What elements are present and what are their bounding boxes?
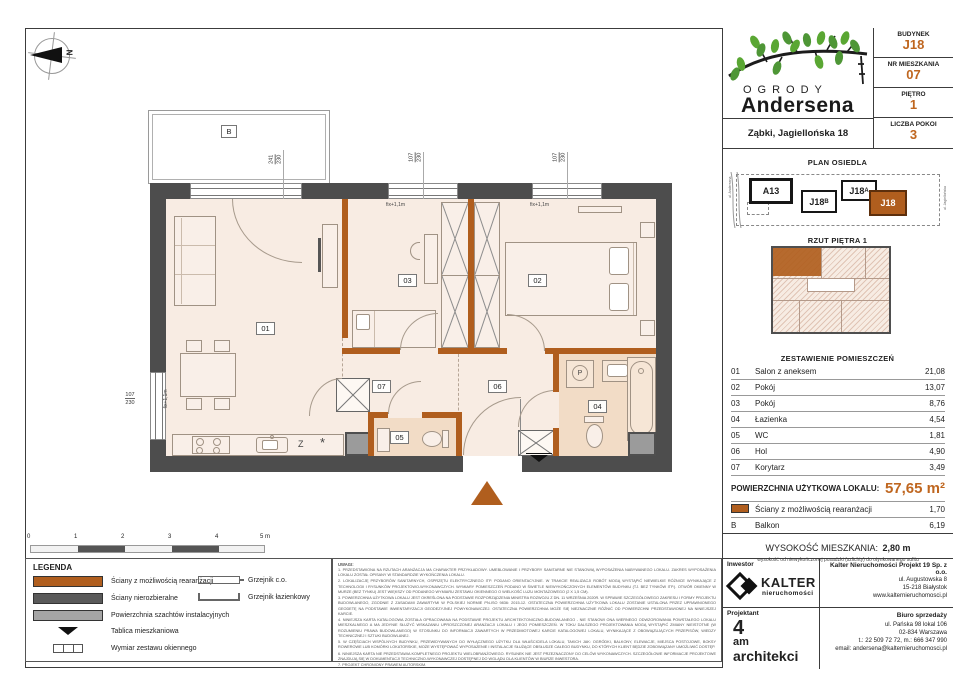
building-label: J18 — [809, 197, 824, 207]
investor-label: Inwestor — [727, 561, 754, 568]
room-area: 4,54 — [929, 415, 945, 424]
info-row: NR MIESZKANIA 07 — [874, 58, 953, 88]
wardrobe — [441, 202, 469, 348]
sales-line: ul. Pańska 98 lokal 106 — [826, 621, 947, 629]
building-a13: A13 — [749, 178, 793, 204]
dining-table — [180, 353, 236, 397]
balcony-area: 6,19 — [929, 521, 945, 530]
washing-machine-symbol: P — [572, 365, 588, 381]
window-dimension: 107 230 — [409, 143, 424, 171]
toilet-bowl — [586, 424, 603, 448]
bed-line — [374, 311, 375, 347]
sofa-line — [175, 274, 215, 275]
sales-line: t.: 22 509 72 72, m.: 666 347 990 — [826, 637, 947, 645]
legend-item: Powierzchnia szachtów instalacyjnych — [33, 610, 229, 621]
sofa-line — [181, 218, 182, 304]
room-label-07: 07 — [372, 380, 391, 393]
room-name: WC — [755, 431, 929, 440]
building-j18-highlight: J18 — [869, 190, 907, 216]
investor-cell: Inwestor KALTER nieruchomości — [723, 559, 819, 607]
table-row: 07 Korytarz 3,49 — [731, 460, 945, 476]
burner — [213, 438, 221, 446]
room-label-04: 04 — [588, 400, 607, 413]
building-label: J18 — [849, 186, 864, 196]
kalter-logo-icon — [729, 573, 759, 601]
fridge-symbol: * — [320, 435, 325, 450]
brand-logo: OGRODY Andersena — [723, 28, 873, 118]
pillow — [609, 283, 629, 311]
room-no: 02 — [731, 383, 755, 392]
x-mark — [475, 203, 499, 275]
scale-tick: 0 — [27, 534, 30, 540]
dim-height: 230 — [415, 153, 423, 162]
scale-bar: 0 1 2 3 4 5 m — [30, 534, 280, 556]
note-item: 5. W CZĘŚCIACH WSPÓLNYCH BUDYNKU, PRZEWI… — [338, 640, 716, 650]
info-value: 07 — [874, 68, 953, 82]
swatch-wrap — [731, 504, 755, 515]
toilet-bowl — [422, 431, 442, 447]
wall — [602, 183, 672, 199]
dishwasher-label: Z — [298, 439, 304, 449]
burner — [213, 447, 220, 454]
fix-height-label: fix+1,1m — [530, 202, 549, 208]
x-mark — [442, 203, 468, 275]
reconfigurable-wall — [368, 418, 374, 456]
dim-height: 230 — [125, 398, 134, 406]
total-label: POWIERZCHNIA UŻYTKOWA LOKALU: — [731, 484, 885, 493]
compass-n-label: N — [64, 50, 73, 56]
balcony-outline — [148, 110, 330, 184]
balcony-label: Balkon — [755, 521, 929, 530]
wall — [302, 183, 388, 199]
room-area: 4,90 — [929, 447, 945, 456]
scale-segment — [172, 546, 219, 552]
highlighted-unit — [773, 248, 821, 276]
note-item: 7. PROJEKT CHRONIONY PRAWEM AUTORSKIM. — [338, 663, 716, 668]
wardrobe-cell — [442, 203, 468, 276]
building-label: J18 — [880, 198, 895, 208]
reconfigurable-wall — [553, 428, 559, 456]
notes-box: UWAGI: 1. PRZEDSTAWIONA NA RZUTACH ARANŻ… — [332, 558, 722, 662]
room-name: Łazienka — [755, 415, 929, 424]
nightstand — [640, 320, 655, 336]
scale-tick: 3 — [168, 534, 171, 540]
unit-info-column: BUDYNEK J18 NR MIESZKANIA 07 PIĘTRO 1 LI… — [873, 28, 953, 148]
info-board-icon — [58, 627, 78, 635]
north-arrow — [30, 47, 62, 63]
info-row: BUDYNEK J18 — [874, 28, 953, 58]
table-row: 06 Hol 4,90 — [731, 444, 945, 460]
company-line: 15-218 Białystok — [826, 584, 947, 592]
investor-name: KALTER — [761, 575, 816, 590]
north-compass-icon: N — [28, 34, 76, 82]
street-label-right: ul. Jagiellońska — [943, 186, 947, 210]
info-board-icon-wrap — [33, 627, 103, 635]
solid-wall-swatch — [33, 593, 103, 604]
thumb-core — [807, 278, 855, 292]
headboard-line — [633, 243, 634, 315]
designer-logo-am: am — [733, 638, 749, 648]
note-item: 4. NINIEJSZA KARTA KATALOGOWA ZOSTAŁA OP… — [338, 618, 716, 639]
reconfigurable-wall — [553, 354, 559, 392]
reconfigurable-wall — [474, 348, 507, 354]
entry-opening — [463, 456, 522, 472]
shelf — [578, 206, 622, 213]
designer-cell: Projektant 4 am architekci — [723, 608, 819, 669]
designer-logo-architekci: architekci — [733, 650, 798, 663]
legend-item: Grzejnik łazienkowy — [198, 593, 310, 601]
company-cell: Kalter Nieruchomości Projekt 19 Sp. z o.… — [820, 559, 953, 607]
room-label-02: 02 — [528, 274, 547, 287]
scale-tick: 1 — [74, 534, 77, 540]
info-row: PIĘTRO 1 — [874, 88, 953, 118]
street-label-left: ul. Andersena — [728, 177, 732, 198]
rooms-table-title: ZESTAWIENIE POMIESZCZEŃ — [723, 354, 952, 363]
chair — [186, 340, 202, 352]
faucet — [270, 435, 274, 439]
room-name: Salon z aneksem — [755, 367, 925, 376]
drain — [638, 368, 644, 374]
designer-logo-4: 4 — [733, 619, 744, 637]
room-no: 05 — [731, 431, 755, 440]
height-label: WYSOKOŚĆ MIESZKANIA: — [765, 543, 878, 553]
room-name: Pokój — [755, 383, 925, 392]
room-area: 13,07 — [925, 383, 945, 392]
room-label-05: 05 — [390, 431, 409, 444]
info-value: 3 — [874, 128, 953, 142]
project-address: Ząbki, Jagiellońska 18 — [723, 118, 873, 148]
wc-sink — [377, 428, 390, 452]
scale-segment — [125, 546, 172, 552]
total-area-row: POWIERZCHNIA UŻYTKOWA LOKALU: 57,65 m² — [731, 476, 945, 502]
shaft-swatch — [33, 610, 103, 621]
tv-cabinet — [322, 224, 338, 288]
legend-label: Grzejnik łazienkowy — [248, 594, 310, 601]
divider — [723, 148, 953, 149]
chair — [214, 398, 230, 410]
scale-tick: 5 m — [260, 534, 270, 540]
room-name: Pokój — [755, 399, 929, 408]
info-row: LICZBA POKOI 3 — [874, 118, 953, 148]
reconfigurable-wall-swatch — [33, 576, 103, 587]
room-area: 8,76 — [929, 399, 945, 408]
company-line: www.kalternieruchomosci.pl — [826, 592, 947, 600]
sales-cell: Biuro sprzedaży ul. Pańska 98 lokal 106 … — [820, 608, 953, 669]
site-plan-map: ul. Andersena ul. Jagiellońska A13 J18B … — [727, 170, 949, 232]
building-j18b: J18B — [801, 190, 837, 213]
walls-label: Ściany z możliwością rearanżacji — [755, 505, 929, 514]
toilet-tank — [442, 430, 449, 448]
reconfigurable-wall — [342, 199, 348, 338]
total-value: 57,65 m² — [885, 480, 945, 497]
dim-height: 230 — [559, 153, 567, 162]
toilet-tank — [584, 416, 604, 423]
chair — [214, 340, 230, 352]
legend-title: LEGENDA — [33, 563, 72, 572]
info-value: 1 — [874, 98, 953, 112]
sales-line: 02-834 Warszawa — [826, 629, 947, 637]
wardrobe-cell — [475, 203, 499, 276]
wardrobe-cell — [442, 276, 468, 348]
table-row: 04 Łazienka 4,54 — [731, 412, 945, 428]
notes-title: UWAGI: — [338, 562, 716, 567]
footer-grid: Inwestor KALTER nieruchomości Kalter Nie… — [723, 558, 953, 668]
note-item: 1. PRZEDSTAWIONA NA RZUTACH ARANŻACJA MA… — [338, 568, 716, 578]
walls-area: 1,70 — [929, 505, 945, 514]
note-item: 2. LOKALIZACJĘ PRZYBORÓW SANITARNYCH, OS… — [338, 579, 716, 595]
legend-label: Powierzchnia szachtów instalacyjnych — [111, 612, 229, 619]
room-name: Hol — [755, 447, 929, 456]
scale-bar-segments — [30, 545, 265, 553]
height-info: WYSOKOŚĆ MIESZKANIA: 2,80 m wysokość od … — [723, 533, 953, 558]
door-leaf — [520, 399, 521, 456]
site-plan-title: PLAN OSIEDLA — [723, 158, 952, 167]
entrance-marker-icon — [471, 481, 503, 505]
room-no: 03 — [731, 399, 755, 408]
scale-tick: 4 — [215, 534, 218, 540]
sofa-line — [175, 245, 215, 246]
x-mark — [442, 276, 468, 348]
investor-sub: nieruchomości — [762, 590, 813, 597]
scale-tick: 2 — [121, 534, 124, 540]
wall — [656, 199, 672, 456]
scale-segment — [78, 546, 125, 552]
window-dimension: 107 230 — [553, 143, 568, 171]
legend-item: Grzejnik c.o. — [198, 576, 287, 584]
info-panel: OGRODY Andersena Ząbki, Jagiellońska 18 … — [722, 28, 952, 668]
note-item: 3. POWIERZCHNIA UŻYTKOWA LOKALU JEST OKR… — [338, 596, 716, 617]
walls-area-row: Ściany z możliwością rearanżacji 1,70 — [731, 502, 945, 518]
wall — [150, 456, 463, 472]
wall — [150, 199, 166, 372]
sink-basin — [607, 364, 628, 377]
room-area: 1,81 — [929, 431, 945, 440]
chair — [186, 398, 202, 410]
info-board-icon — [530, 455, 548, 462]
fix-height-label: fix+1,1m — [163, 379, 169, 419]
bathroom-radiator-icon — [198, 593, 240, 601]
burner — [196, 447, 203, 454]
balcony-area-row: B Balkon 6,19 — [731, 518, 945, 534]
room-label-01: 01 — [256, 322, 275, 335]
installation-shaft — [628, 432, 656, 456]
designer-label: Projektant — [727, 610, 759, 617]
radiator-icon — [198, 576, 240, 584]
window — [190, 183, 302, 199]
fix-height-label: fix+1,1m — [386, 202, 405, 208]
reconfigurable-wall-swatch — [731, 504, 749, 513]
reconfigurable-wall — [468, 199, 474, 353]
x-mark — [475, 276, 499, 348]
legend-label: Wymiar zestawu okiennego — [111, 645, 197, 652]
legend-box: LEGENDA Ściany z możliwością rearanżacji… — [25, 558, 332, 662]
tree-branch-icon — [727, 30, 869, 88]
burner — [196, 438, 204, 446]
window-dimension: 241 230 — [269, 145, 284, 173]
dim-height: 230 — [275, 155, 283, 164]
room-area: 3,49 — [929, 463, 945, 472]
scale-segment — [31, 546, 78, 552]
legend-item: Ściany z możliwością rearanżacji — [33, 576, 213, 587]
window-dim-icon — [53, 644, 83, 653]
legend-item: Tablica mieszkaniowa — [33, 627, 179, 635]
info-board-line — [526, 453, 552, 454]
room-no: 06 — [731, 447, 755, 456]
table-row: 02 Pokój 13,07 — [731, 380, 945, 396]
room-area: 21,08 — [925, 367, 945, 376]
room-no: 01 — [731, 367, 755, 376]
tv-screen — [318, 238, 321, 272]
building-label: A13 — [763, 186, 780, 196]
height-value: 2,80 m — [882, 543, 910, 553]
room-no: 04 — [731, 415, 755, 424]
table-row: 03 Pokój 8,76 — [731, 396, 945, 412]
legend-item: Ściany nierozbieralne — [33, 593, 178, 604]
room-name: Korytarz — [755, 463, 929, 472]
floor-thumb-title: RZUT PIĘTRA 1 — [723, 236, 952, 245]
table-row: 01 Salon z aneksem 21,08 — [731, 364, 945, 380]
floor-thumbnail — [771, 246, 891, 334]
reconfigurable-wall — [342, 348, 400, 354]
sales-line: email: andersena@kalternieruchomosci.pl — [826, 645, 947, 653]
sink-basin — [262, 440, 278, 450]
window-dim-icon-wrap — [33, 644, 103, 653]
info-value: J18 — [874, 38, 953, 52]
apartment-card-sheet: N B Z * — [0, 0, 960, 678]
nightstand — [640, 222, 655, 238]
wall — [458, 183, 532, 199]
notes-list: 1. PRZEDSTAWIONA NA RZUTACH ARANŻACJA MA… — [338, 568, 716, 668]
wardrobe — [474, 202, 500, 348]
desk — [424, 234, 438, 284]
brand-bottom: Andersena — [741, 94, 854, 118]
wall — [150, 183, 190, 199]
company-line: ul. Augustowska 8 — [826, 576, 947, 584]
room-label-06: 06 — [488, 380, 507, 393]
pillow — [609, 247, 629, 275]
pillow — [356, 314, 370, 330]
balcony-label: B — [221, 125, 237, 138]
reconfigurable-wall — [545, 348, 656, 354]
note-item: 6. NINIEJSZA KARTA NIE PRZEDSTAWIA KOMPL… — [338, 652, 716, 662]
scale-segment — [219, 546, 264, 552]
legend-label: Ściany nierozbieralne — [111, 595, 178, 602]
building-label-sub: B — [824, 199, 828, 205]
reconfigurable-wall — [456, 418, 462, 456]
room-label-03: 03 — [398, 274, 417, 287]
company-name: Kalter Nieruchomości Projekt 19 Sp. z o.… — [826, 562, 947, 576]
table-row: 05 WC 1,81 — [731, 428, 945, 444]
reconfigurable-wall — [438, 348, 474, 354]
sales-label: Biuro sprzedaży — [826, 612, 947, 619]
legend-label: Tablica mieszkaniowa — [111, 628, 179, 635]
legend-label: Grzejnik c.o. — [248, 577, 287, 584]
legend-item: Wymiar zestawu okiennego — [33, 644, 197, 653]
wardrobe-cell — [475, 276, 499, 348]
window-dimension: 107 230 — [118, 392, 142, 407]
balcony-no: B — [731, 521, 755, 530]
room-no: 07 — [731, 463, 755, 472]
